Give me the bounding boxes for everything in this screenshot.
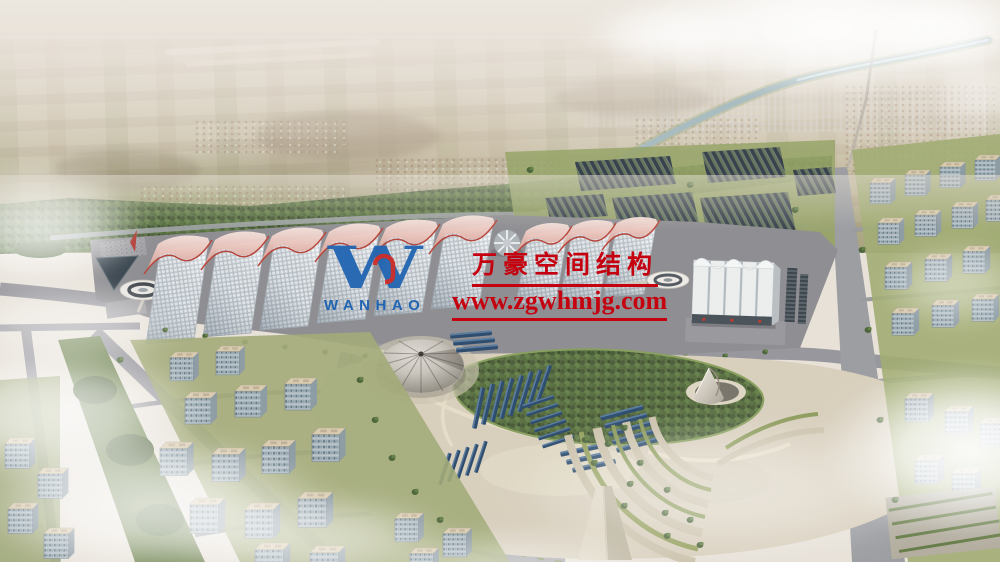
cloud (580, 0, 760, 70)
aerial-rendering: W WANHAO 万豪空间结构 www.zgwhmjg.com (0, 0, 1000, 562)
wanhao-logo-icon: W (326, 236, 436, 300)
vaulted-hall (685, 258, 788, 345)
svg-text:W: W (327, 236, 424, 300)
watermark-website-url: www.zgwhmjg.com (452, 287, 667, 321)
watermark-logo-letters: WANHAO (324, 297, 425, 314)
watermark-company-name: 万豪空间结构 (472, 252, 658, 287)
